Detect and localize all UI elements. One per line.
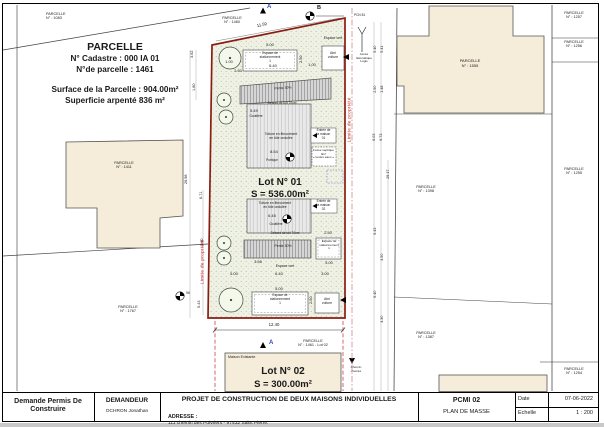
property-limit-right: Limite de propriété bbox=[346, 80, 351, 160]
dim-1-80: 1.80 bbox=[192, 78, 196, 96]
section-a-top-label: A bbox=[267, 4, 277, 11]
parcel-info-surveyed: Superficie arpenté 836 m² bbox=[25, 96, 205, 106]
parking-1-label: Espace de stationnement 1 bbox=[244, 52, 296, 64]
roof-2-overhang-label: Débord de toit 70cm bbox=[259, 232, 311, 236]
existing-house-label: Maison Existante bbox=[228, 355, 272, 359]
dim-6-43: 6.43 bbox=[373, 222, 377, 240]
parking-2-label: Espace de stationnement 1 bbox=[317, 240, 341, 251]
dim-2-60: 2.60 bbox=[230, 69, 246, 73]
dim-6-40-road: 6.40 bbox=[373, 285, 377, 303]
parcel-label-1460: PARCELLE N° : 1460 bbox=[214, 16, 250, 25]
dim-5-43: 5.43 bbox=[197, 295, 201, 313]
project-address: ADRESSE : 111 chemin des Poivriers - 974… bbox=[168, 408, 416, 426]
dim-6-45: 6.45 bbox=[261, 214, 283, 219]
dim-2-50-parking2: 2.50 bbox=[319, 231, 337, 236]
dim-6-40-parking1: 6.40 bbox=[261, 64, 285, 69]
dim-1-00-right: 1.00 bbox=[305, 63, 319, 67]
parcel-label-1767: PARCELLE N° : 1767 bbox=[110, 305, 146, 314]
dim-4-30: 4.30 bbox=[380, 310, 384, 328]
parcel-label-1387: PARCELLE N° : 1387 bbox=[406, 331, 446, 340]
parcel-info-title: PARCELLE bbox=[65, 41, 165, 53]
address-value: 111 chemin des Poivriers - 97432 Saint P… bbox=[168, 421, 268, 426]
tb-divider-1 bbox=[94, 393, 95, 422]
plan-sheet: PARCELLE N° : 1083 PARCELLE N° : 1460 PA… bbox=[0, 0, 604, 423]
dim-5-41: 5.41 bbox=[380, 40, 384, 58]
carport-1-label: Abri voiture bbox=[325, 51, 341, 59]
parcel-info-cadastre: N° Cadastre : 000 IA 01 bbox=[45, 54, 185, 64]
lot1-title: Lot N° 01 bbox=[245, 177, 315, 189]
dim-6-40-row: 6.40 bbox=[267, 272, 291, 277]
roof-1-overhang-label: Débord de toit 70cm bbox=[256, 102, 308, 106]
pcn-label: PCN 81 bbox=[354, 14, 374, 18]
parking-3-label: Espace de stationnement 1 bbox=[253, 294, 307, 305]
dim-3-00-row: 3.00 bbox=[313, 272, 337, 277]
section-a-bottom-label: A bbox=[269, 340, 279, 347]
lot1-area: S = 536.00m² bbox=[237, 189, 323, 200]
scale-label: Echelle bbox=[518, 410, 546, 416]
permit-type: Demande Permis De Construire bbox=[6, 398, 90, 415]
lot2-parcel-label: PARCELLE N° : 1461 - Lot 02 bbox=[290, 339, 336, 348]
parcel-label-1256: PARCELLE N° : 1256 bbox=[554, 40, 594, 49]
dim-26-98: 26.98 bbox=[184, 170, 188, 188]
marker-b-label: B bbox=[317, 5, 327, 11]
survey-marker-top bbox=[306, 12, 314, 20]
dim-6-71: 6.71 bbox=[199, 186, 203, 204]
dim-5-00-row: 5.00 bbox=[222, 272, 246, 277]
house-02-roof bbox=[244, 240, 311, 258]
date-value: 07-06-2022 bbox=[548, 396, 593, 402]
dim-1-60: 1.60 bbox=[200, 233, 204, 251]
road-right-edge bbox=[394, 8, 397, 391]
tb-divider-6 bbox=[515, 407, 598, 408]
dim-2-50-parking3: 2.50 bbox=[309, 291, 313, 309]
gutter-2-label: Gouttière bbox=[262, 223, 290, 227]
dim-6-73: 6.73 bbox=[379, 128, 383, 146]
parcel-label-1398: PARCELLE N° : 1398 bbox=[406, 185, 446, 194]
lot2-title: Lot N° 02 bbox=[247, 366, 319, 378]
neighbor-building-1254 bbox=[439, 375, 547, 392]
address-label: ADRESSE : bbox=[168, 414, 197, 420]
lot2-area: S = 300.00m² bbox=[243, 379, 323, 390]
dim-1-48: 1.48 bbox=[380, 80, 384, 98]
parcel-label-1254: PARCELLE N° : 1254 bbox=[554, 367, 594, 376]
road-lines bbox=[352, 8, 397, 391]
dim-1-00-left: 1.00 bbox=[222, 60, 236, 64]
tb-divider-3 bbox=[418, 393, 419, 422]
parcel-label-1083: PARCELLE N° : 1083 bbox=[46, 12, 78, 21]
dim-5-00-parking2: 5.00 bbox=[320, 261, 338, 265]
portico-label: Portique bbox=[260, 159, 284, 163]
dim-3-56: 3.56 bbox=[249, 260, 267, 265]
survey-marker-house1 bbox=[286, 153, 294, 161]
septic-tank-label: Fosse septique 3m³ « toutes eaux » bbox=[312, 149, 335, 160]
dim-6-03: 6.03 bbox=[372, 128, 376, 146]
dim-3-62: 3.62 bbox=[190, 45, 194, 63]
dim-5-40: 5.40 bbox=[373, 40, 377, 58]
dim-5-49: 5.49 bbox=[245, 109, 263, 114]
date-label: Date bbox=[518, 396, 546, 402]
neighbor-building-1411 bbox=[66, 140, 183, 248]
parcel-label-1411: PARCELLE N° : 1411 bbox=[106, 161, 142, 170]
dim-12-40: 12.40 bbox=[259, 322, 289, 327]
parcel-label-1555: PARCELLE N° : 1555 bbox=[450, 59, 490, 68]
carport-2-label: Abri voiture bbox=[319, 297, 335, 305]
dim-29-17: 29.17 bbox=[386, 165, 390, 183]
screenshot-root: { "info": { "title": "PARCELLE", "cadast… bbox=[0, 0, 604, 427]
dim-5-00-top: 5.00 bbox=[258, 43, 282, 48]
dim-2-50-parking1: 2.50 bbox=[299, 50, 303, 68]
green-space-label-top: Espace vert bbox=[320, 36, 346, 40]
entrance-2-label: Entrée de la maison 02 bbox=[312, 200, 335, 211]
section-a-bottom-icon bbox=[260, 342, 266, 348]
applicant-name: OCHRON Jonathan bbox=[96, 409, 158, 415]
section-a-top-icon bbox=[260, 8, 266, 14]
dim-5-00-parking3: 5.00 bbox=[267, 287, 291, 292]
access-path-label: Chemin d'accès bbox=[345, 366, 367, 373]
parcel-label-1255: PARCELLE N° : 1255 bbox=[554, 167, 594, 176]
parcel-label-1257: PARCELLE N° : 1257 bbox=[554, 11, 594, 20]
document-code: PCMI 02 bbox=[420, 397, 513, 405]
tb-divider-2 bbox=[160, 393, 161, 422]
dim-8-54: 8.54 bbox=[263, 150, 285, 155]
gutter-1-label: Gouttière bbox=[242, 115, 270, 119]
survey-marker-house2 bbox=[283, 215, 291, 223]
scale-value: 1 : 200 bbox=[548, 410, 593, 416]
utility-pole bbox=[358, 27, 366, 52]
roof-2-slope-label: Pente 30% bbox=[259, 244, 307, 248]
survey-marker-left bbox=[176, 292, 184, 300]
dim-2-50-road: 2.50 bbox=[373, 80, 377, 98]
benchmark-96-label: 96 bbox=[186, 291, 196, 295]
project-title: PROJET DE CONSTRUCTION DE DEUX MAISONS I… bbox=[162, 396, 416, 404]
roofing-1-label: Toiture en fibrociment en tôle ondulée bbox=[253, 132, 309, 140]
applicant-label: DEMANDEUR bbox=[96, 397, 158, 405]
green-space-label-mid: Espace vert bbox=[272, 264, 298, 268]
entrance-1-label: Entrée de la maison 01 bbox=[312, 129, 335, 140]
dim-4-50: 4.50 bbox=[380, 248, 384, 266]
parcel-info-surface: Surface de la Parcelle : 904.00m² bbox=[25, 85, 205, 95]
roofing-2-label: Toiture en fibrociment en tôle ondulée bbox=[247, 201, 303, 209]
parcel-info-number: N°de parcelle : 1461 bbox=[45, 65, 185, 75]
document-name: PLAN DE MASSE bbox=[420, 409, 513, 416]
